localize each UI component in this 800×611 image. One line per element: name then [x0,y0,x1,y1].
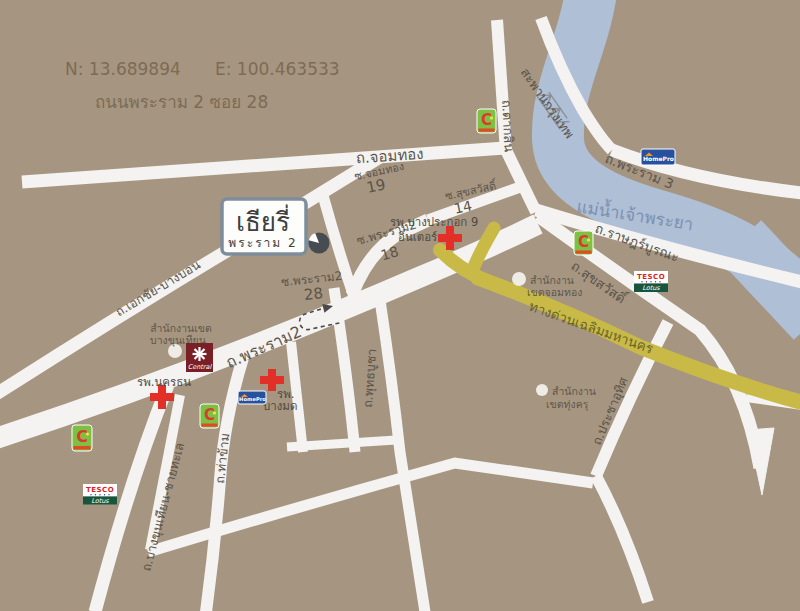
bigc-banner [479,129,495,132]
lotus-wordmark: Lotus [91,497,109,505]
tesco-lotus-logo-southwest: TESCO Lotus [83,484,117,505]
map-canvas: N: 13.689894 E: 100.463533 ถนนพระราม 2 ซ… [0,0,800,611]
office-chomthong-line2: เขตจอมทอง [527,286,582,298]
coordinate-east: E: 100.463533 [215,59,340,79]
homepro-logo-bangmod: HomePro [238,391,266,404]
homepro-logo-rama3: HomePro [641,149,675,165]
label-hospital-nakhonthon: รพ.นครธน [137,375,191,389]
bigc-banner [576,251,592,254]
office-bangkhunthian-line1: สำนักงานเขต [150,322,212,334]
bigc-spark [86,432,89,435]
coordinate-north: N: 13.689894 [65,59,181,79]
label-road-taksin: ถ.ตากสิน [499,99,517,152]
bigc-letter: C [481,111,492,129]
location-map: N: 13.689894 E: 100.463533 ถนนพระราม 2 ซ… [0,0,800,611]
bigc-logo-southwest: C [72,425,92,451]
bigc-letter: C [76,427,88,446]
bigc-spark [490,116,493,119]
tesco-lotus-logo-suksawat: TESCO Lotus [634,271,668,292]
label-hospital-bangpakok9-line1: รพ.บางประกอก 9 [390,215,478,229]
office-dot [512,272,526,286]
bigc-banner [74,446,91,450]
address-line: ถนนพระราม 2 ซอย 28 [95,92,268,112]
bigc-letter: C [204,406,215,424]
tesco-wordmark: TESCO [86,486,114,494]
central-logo: Central [186,343,213,372]
bigc-spark [213,411,216,414]
office-chomthong-line1: สำนักงาน [530,274,574,286]
central-wordmark: Central [188,363,213,371]
project-subtitle: พระราม 2 [228,236,297,250]
label-soi-rama2-28-number: 28 [303,284,324,304]
homepro-wordmark: HomePro [239,396,266,402]
bigc-logo-ratburana: C [574,231,593,255]
label-hospital-bangpakok9-line2: อินเตอร์ [398,230,437,244]
bigc-logo-taksin: C [477,109,496,133]
lotus-wordmark: Lotus [642,284,660,292]
project-name: เธียรี่ [236,204,290,237]
label-hospital-bangmod-line2: บางมด [263,399,297,413]
bigc-banner [202,424,218,427]
office-dot [168,344,182,358]
homepro-wordmark: HomePro [643,155,674,162]
office-thungkhru-line2: เขตทุ่งครุ [546,398,589,411]
tesco-wordmark: TESCO [637,273,665,281]
central-starburst [193,347,207,361]
bigc-spark [587,238,590,241]
office-dot [536,384,548,396]
office-thungkhru-line1: สำนักงาน [552,385,596,397]
bigc-letter: C [578,233,589,251]
bigc-logo-rama2: C [200,404,219,428]
